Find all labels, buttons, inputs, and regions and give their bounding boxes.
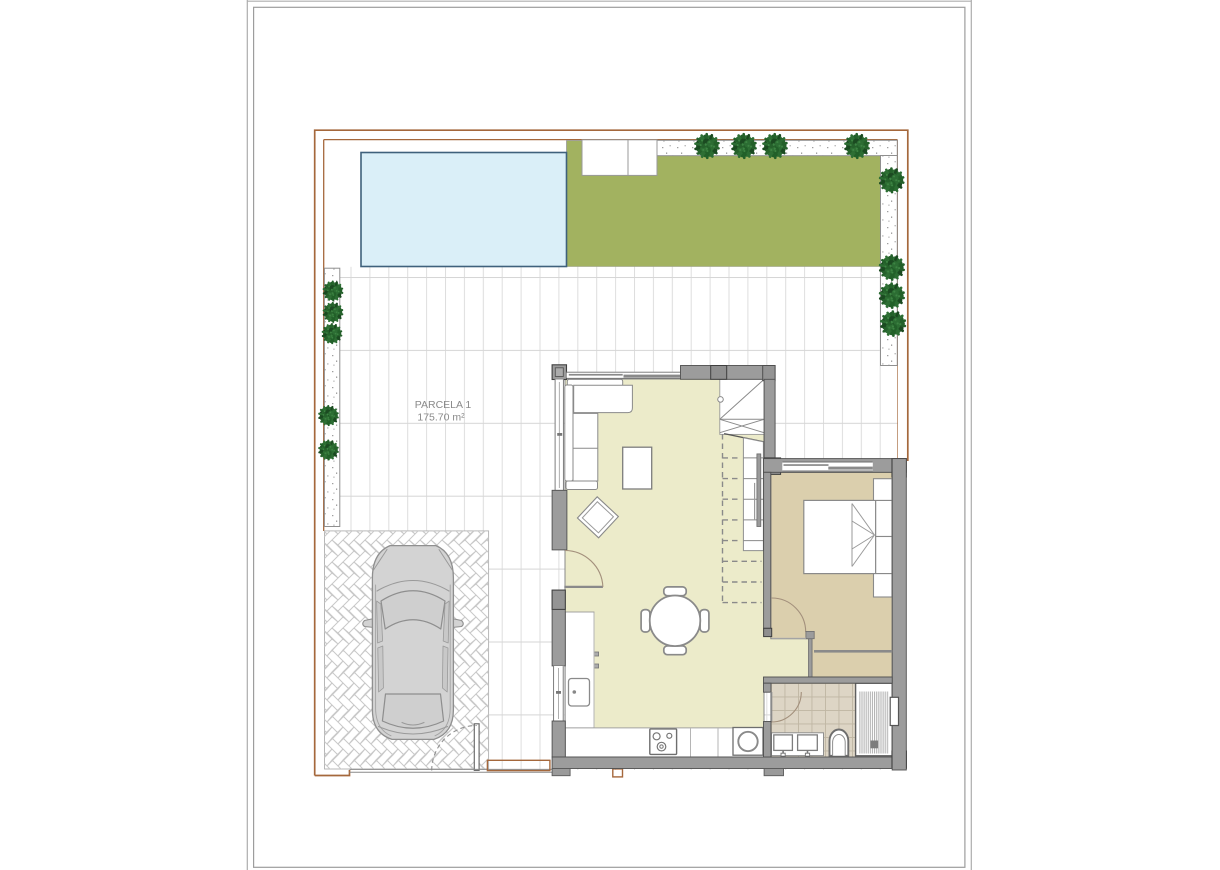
svg-text:PARCELA 1: PARCELA 1 bbox=[415, 399, 472, 411]
svg-text:175.70 m²: 175.70 m² bbox=[417, 412, 465, 424]
